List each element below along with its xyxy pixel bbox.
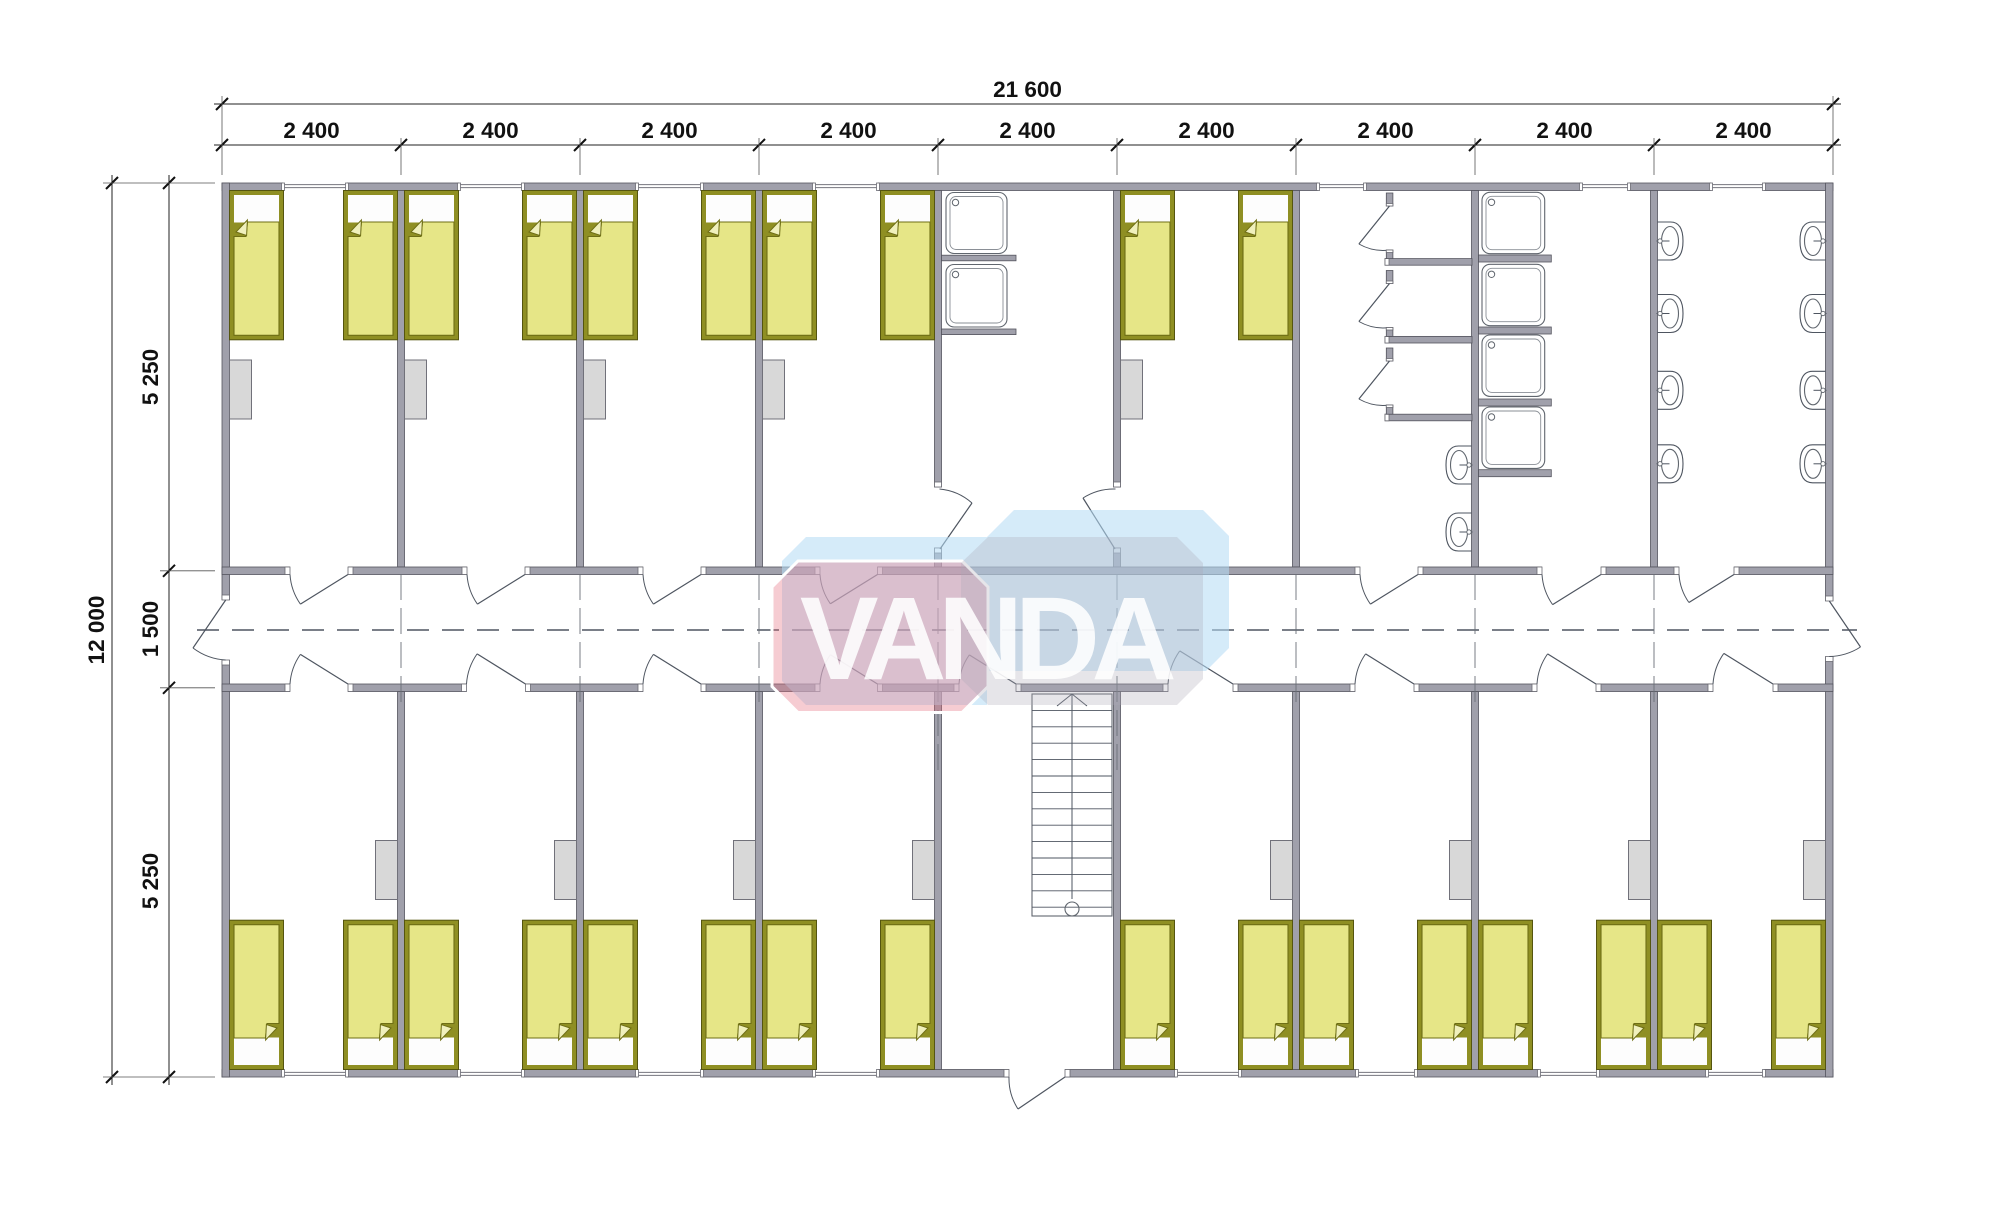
svg-text:2 400: 2 400 bbox=[641, 118, 697, 143]
svg-text:2 400: 2 400 bbox=[820, 118, 876, 143]
svg-text:2 400: 2 400 bbox=[1536, 118, 1592, 143]
svg-text:5 250: 5 250 bbox=[138, 853, 163, 909]
svg-text:2 400: 2 400 bbox=[283, 118, 339, 143]
svg-text:1 500: 1 500 bbox=[138, 601, 163, 657]
svg-text:21 600: 21 600 bbox=[993, 77, 1062, 102]
svg-text:VANDA: VANDA bbox=[800, 573, 1175, 705]
svg-text:5 250: 5 250 bbox=[138, 349, 163, 405]
svg-text:2 400: 2 400 bbox=[1715, 118, 1771, 143]
svg-text:2 400: 2 400 bbox=[462, 118, 518, 143]
svg-text:12 000: 12 000 bbox=[84, 596, 109, 665]
svg-text:2 400: 2 400 bbox=[999, 118, 1055, 143]
svg-text:2 400: 2 400 bbox=[1357, 118, 1413, 143]
svg-text:2 400: 2 400 bbox=[1178, 118, 1234, 143]
